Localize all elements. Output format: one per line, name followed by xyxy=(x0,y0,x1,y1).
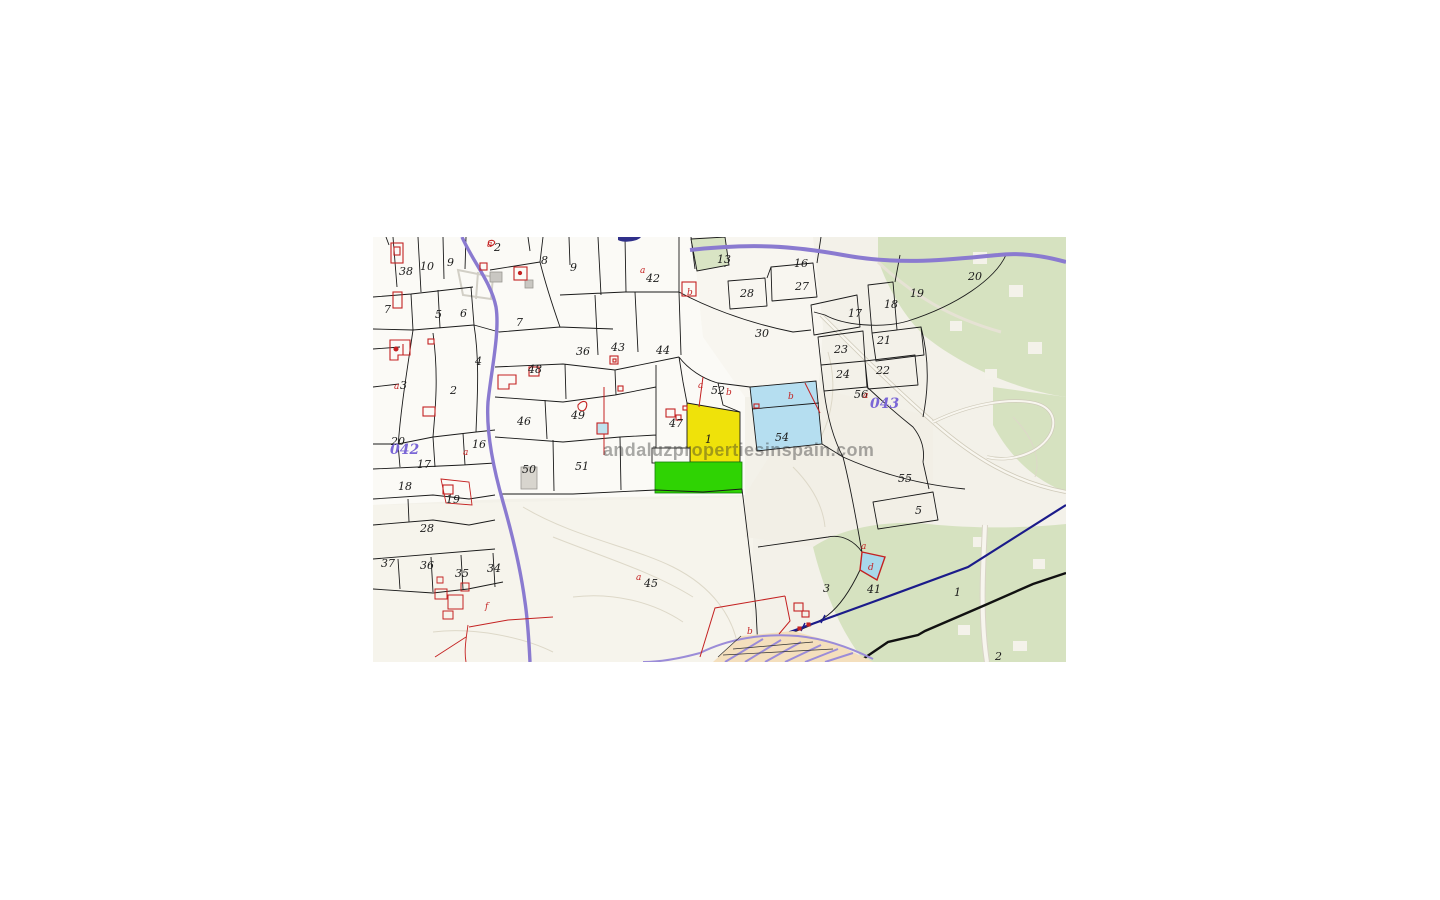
parcel-label: 18 xyxy=(884,298,898,311)
parcel-label: 3 xyxy=(823,582,830,595)
parcel-label: 47 xyxy=(668,417,683,430)
subdivision-label: a xyxy=(863,391,868,401)
subdivision-label: d xyxy=(868,563,874,573)
parcel-label: 10 xyxy=(420,260,434,273)
parcel-label: 34 xyxy=(487,562,501,575)
parcel-label: 37 xyxy=(381,557,395,570)
parcel-label: 22 xyxy=(875,364,890,377)
parcel-label: 46 xyxy=(516,415,531,428)
parcel-label: 43 xyxy=(610,341,625,354)
parcel-label: 51 xyxy=(575,460,589,473)
subdivision-label: b xyxy=(747,627,753,637)
parcel-label: 23 xyxy=(833,343,848,356)
parcel-label: 9 xyxy=(570,261,577,274)
parcel-label: 41 xyxy=(866,583,881,596)
screenshot-canvas: 3810928942131627281718192030212324227567… xyxy=(0,0,1440,900)
parcel-label: 3 xyxy=(400,379,407,392)
parcel-label: 16 xyxy=(794,257,808,270)
parcel-label: 2 xyxy=(449,384,457,397)
sheet-label: 042 xyxy=(390,442,419,458)
parcel-label: 21 xyxy=(876,334,891,347)
subdivision-label: a xyxy=(463,448,468,458)
subdivision-label: a xyxy=(698,381,703,391)
parcel-label: 16 xyxy=(472,438,486,451)
parcel-label: 4 xyxy=(474,355,482,368)
sheet-label: 043 xyxy=(870,396,899,412)
parcel-label: 38 xyxy=(399,265,413,278)
parcel-label: 42 xyxy=(645,272,660,285)
parcel-label: 28 xyxy=(739,287,754,300)
parcel-label: 36 xyxy=(576,345,590,358)
parcel-label: 5 xyxy=(435,308,442,321)
parcel-label: 55 xyxy=(898,472,912,485)
parcel-label: 13 xyxy=(717,253,731,266)
subdivision-label: a xyxy=(487,240,492,250)
parcel-label: 1 xyxy=(954,586,961,599)
parcel-label: 48 xyxy=(527,363,542,376)
parcel-label: 9 xyxy=(447,256,454,269)
parcel-label: 27 xyxy=(794,280,809,293)
parcel-label: 44 xyxy=(655,344,670,357)
parcel-label: 5 xyxy=(915,504,922,517)
parcel-label: 2 xyxy=(994,650,1002,662)
adjacent-parcel-green[interactable] xyxy=(655,462,742,493)
watermark-text: andaluzpropertiesinspain.com xyxy=(603,440,923,461)
parcel-label: 8 xyxy=(541,254,548,267)
subdivision-label: a xyxy=(640,266,645,276)
parcel-label: 7 xyxy=(516,316,523,329)
parcel-label: 6 xyxy=(460,307,467,320)
parcel-label: 17 xyxy=(417,458,431,471)
parcel-label: 30 xyxy=(755,327,769,340)
parcel-label: 2 xyxy=(493,241,501,254)
parcel-label: 24 xyxy=(835,368,850,381)
subdivision-label: a xyxy=(394,382,399,392)
parcel-label: 19 xyxy=(910,287,924,300)
parcel-label: 49 xyxy=(570,409,585,422)
parcel-label: 52 xyxy=(711,384,725,397)
parcel-label: 19 xyxy=(446,493,460,506)
subdivision-label: b xyxy=(726,388,732,398)
parcel-label: 35 xyxy=(455,567,469,580)
parcel-label: 50 xyxy=(522,463,536,476)
subdivision-label: a xyxy=(636,573,641,583)
parcel-label: 45 xyxy=(643,577,658,590)
cadastral-map[interactable]: 3810928942131627281718192030212324227567… xyxy=(373,237,1066,662)
parcel-label: 36 xyxy=(420,559,434,572)
parcel-label: 18 xyxy=(398,480,412,493)
parcel-label: 20 xyxy=(967,270,982,283)
parcel-label: 7 xyxy=(384,303,391,316)
parcel-label: 17 xyxy=(848,307,862,320)
subdivision-label: a xyxy=(861,542,866,552)
parcel-label: 28 xyxy=(419,522,434,535)
subdivision-label: b xyxy=(788,392,794,402)
subdivision-label: b xyxy=(687,288,693,298)
